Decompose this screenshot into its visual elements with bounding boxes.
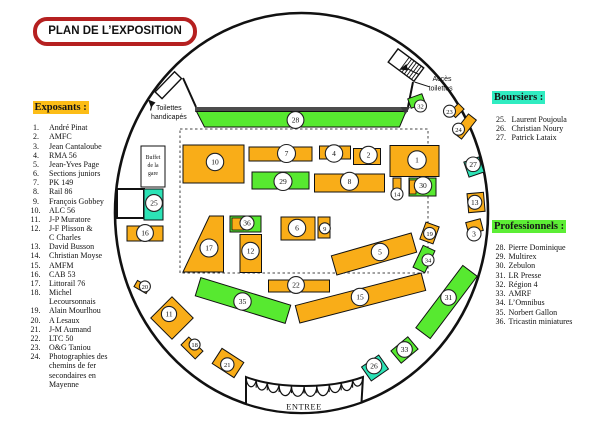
svg-text:ENTREE: ENTREE <box>286 402 322 412</box>
svg-text:2: 2 <box>367 151 371 160</box>
svg-text:27: 27 <box>469 160 477 169</box>
svg-text:32: 32 <box>417 104 424 111</box>
svg-text:29: 29 <box>279 177 287 186</box>
svg-text:4: 4 <box>332 149 336 158</box>
svg-text:10: 10 <box>211 158 219 167</box>
svg-text:gare: gare <box>148 171 158 177</box>
svg-text:16: 16 <box>141 229 149 238</box>
svg-text:Accès: Accès <box>433 76 453 83</box>
svg-text:34: 34 <box>425 258 432 265</box>
svg-text:26: 26 <box>370 362 378 371</box>
svg-text:28: 28 <box>292 116 300 125</box>
svg-text:toilettes: toilettes <box>429 86 454 93</box>
svg-text:20: 20 <box>142 284 149 291</box>
svg-text:12: 12 <box>247 247 255 256</box>
svg-text:handicapés: handicapés <box>151 114 187 121</box>
svg-text:6: 6 <box>295 224 299 233</box>
svg-text:25: 25 <box>150 199 158 208</box>
svg-text:3: 3 <box>472 230 476 239</box>
svg-text:13: 13 <box>471 198 479 207</box>
svg-text:33: 33 <box>401 345 409 354</box>
svg-text:31: 31 <box>445 293 453 302</box>
svg-text:Toilettes: Toilettes <box>156 105 182 112</box>
svg-text:17: 17 <box>205 244 213 253</box>
svg-text:5: 5 <box>378 248 382 257</box>
svg-text:14: 14 <box>394 192 401 199</box>
svg-text:23: 23 <box>446 109 453 116</box>
svg-text:9: 9 <box>323 226 326 233</box>
svg-text:36: 36 <box>243 219 251 228</box>
svg-text:15: 15 <box>356 293 364 302</box>
svg-text:35: 35 <box>239 297 247 306</box>
svg-text:1: 1 <box>415 156 419 165</box>
svg-text:Buffet: Buffet <box>146 154 161 161</box>
svg-text:8: 8 <box>348 177 352 186</box>
svg-text:18: 18 <box>191 342 198 349</box>
svg-text:21: 21 <box>224 362 231 369</box>
svg-text:de la: de la <box>147 163 159 169</box>
svg-text:24: 24 <box>455 127 462 134</box>
svg-text:19: 19 <box>426 231 433 238</box>
svg-text:7: 7 <box>285 149 289 158</box>
svg-text:22: 22 <box>292 281 300 290</box>
svg-text:11: 11 <box>165 310 172 319</box>
svg-text:30: 30 <box>419 181 427 190</box>
